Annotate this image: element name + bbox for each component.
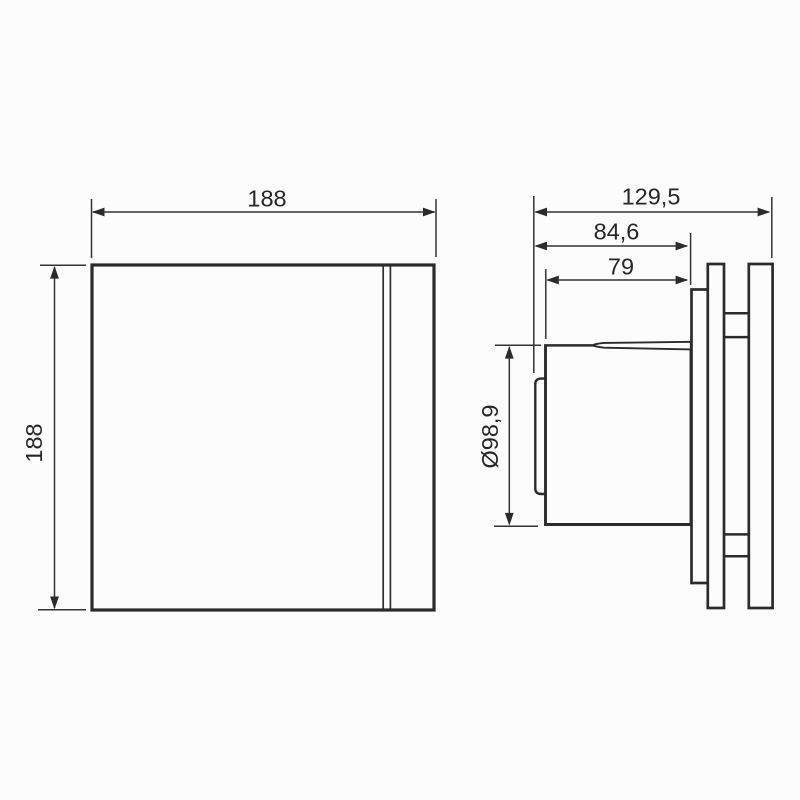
svg-text:84,6: 84,6 — [594, 219, 640, 245]
svg-text:188: 188 — [247, 186, 286, 212]
svg-text:Ø98,9: Ø98,9 — [477, 404, 503, 468]
svg-text:188: 188 — [21, 423, 47, 462]
svg-text:79: 79 — [608, 254, 634, 280]
svg-text:129,5: 129,5 — [622, 184, 681, 210]
